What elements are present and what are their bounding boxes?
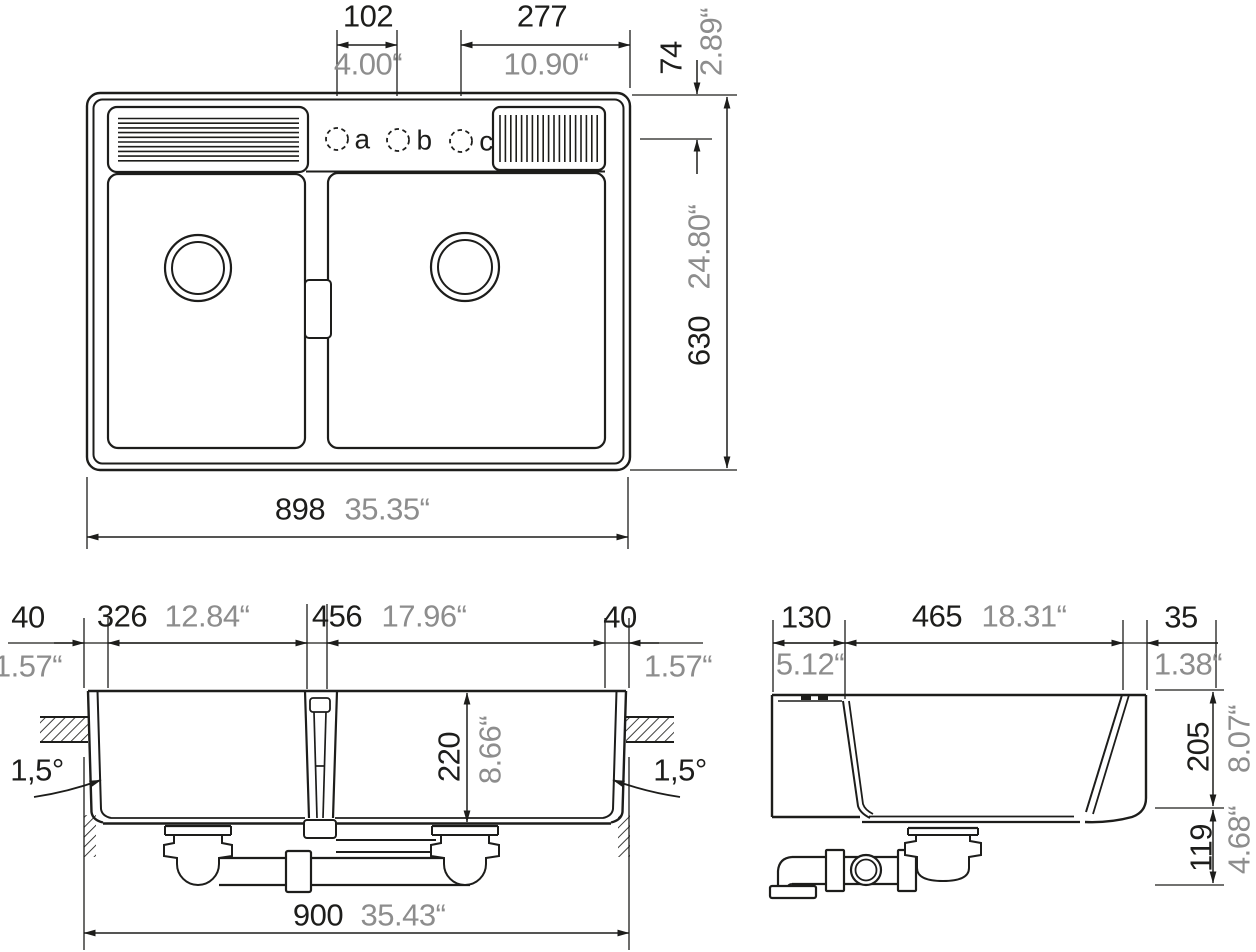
tap-hole-b-icon (387, 129, 409, 151)
dim-right-bowl-mm: 456 (312, 599, 362, 634)
dim-side-depth-mm: 205 (1181, 722, 1216, 772)
dim-right-bowl-in: 17.96“ (382, 599, 467, 634)
left-bowl (108, 174, 305, 448)
tap-holes: a b c (326, 124, 493, 157)
dim-hole-pitch-in: 4.00“ (334, 47, 402, 82)
dim-back-rim-mm: 35 (1164, 600, 1197, 635)
sink-technical-drawing: a b c 102 4.00“ (0, 0, 1256, 952)
tap-hole-label-a: a (354, 124, 370, 155)
tap-hole-c-icon (450, 130, 472, 152)
dim-back-rim-in: 1.38“ (1154, 647, 1222, 682)
dim-side-bowl-mm: 465 (912, 599, 962, 634)
dim-side-depth-in: 8.07“ (1222, 705, 1256, 773)
dim-ledge-in: 5.12“ (776, 647, 844, 682)
pipe-nut (286, 851, 311, 892)
right-drain (431, 233, 499, 301)
pipe-nut (826, 850, 844, 891)
side-section (770, 695, 1146, 898)
outlet-flange (770, 886, 816, 898)
dim-overall-mm: 900 (293, 898, 343, 933)
tap-hole-a-icon (326, 128, 348, 150)
dim-edge-holes-in: 2.89“ (694, 8, 729, 76)
plan-view: a b c (87, 93, 630, 470)
dim-left-rim-mm: 40 (11, 600, 45, 635)
dim-edge-holes-mm: 74 (654, 41, 689, 75)
front-section-dimensions: 40 1.57“ 326 12.84“ 456 17.96“ 40 1.57“ … (0, 599, 712, 951)
dim-width-mm: 898 (275, 492, 325, 527)
dim-left-rim-in: 1.57“ (0, 649, 62, 684)
dim-hole-pitch-mm: 102 (343, 0, 393, 34)
dim-left-bowl-mm: 326 (97, 599, 147, 634)
dim-ledge-mm: 130 (781, 600, 831, 635)
clip-notch (818, 695, 828, 700)
side-section-dimensions: 130 5.12“ 465 18.31“ 35 1.38“ 205 8.07“ … (773, 599, 1256, 886)
dim-right-rim-in: 1.57“ (644, 649, 712, 684)
drawing-canvas: a b c 102 4.00“ (0, 0, 1256, 952)
dim-bowl-depth-mm: 220 (432, 732, 467, 782)
dim-depth-in: 24.80“ (682, 204, 717, 289)
right-bowl (328, 173, 605, 448)
dim-drain-height-mm: 119 (1184, 824, 1219, 872)
dim-drain-height-in: 4.68“ (1222, 806, 1256, 874)
drain-plumbing (164, 820, 499, 892)
overflow-connector (305, 280, 331, 338)
dim-side-bowl-in: 18.31“ (982, 599, 1067, 634)
drainer-grooves-panel (108, 107, 308, 172)
tap-hole-label-b: b (416, 125, 431, 156)
plan-dimensions: 102 4.00“ 277 10.90“ 74 2.89“ 630 24.80“… (87, 0, 737, 549)
dim-depth-mm: 630 (682, 316, 717, 366)
taper-angle-right: 1,5° (653, 753, 707, 788)
dim-bowl-depth-in: 8.66“ (473, 716, 508, 784)
dim-hole-edge-in: 10.90“ (504, 47, 589, 82)
groove-hatch-horizontal (118, 119, 299, 161)
clip-notch (801, 695, 811, 700)
dim-right-rim-mm: 40 (603, 600, 637, 635)
tap-hole-label-c: c (479, 126, 493, 157)
taper-angle-left: 1,5° (10, 753, 64, 788)
groove-hatch-vertical (500, 115, 597, 162)
center-divider (305, 691, 337, 818)
dim-width-in: 35.35“ (345, 492, 430, 527)
side-plumbing (770, 828, 981, 898)
dim-hole-edge-mm: 277 (517, 0, 567, 34)
right-strainer (431, 826, 499, 885)
dim-left-bowl-in: 12.84“ (165, 599, 250, 634)
left-drain (165, 235, 231, 301)
left-strainer (164, 826, 232, 885)
front-section (34, 691, 680, 892)
dim-overall-in: 35.43“ (361, 898, 446, 933)
